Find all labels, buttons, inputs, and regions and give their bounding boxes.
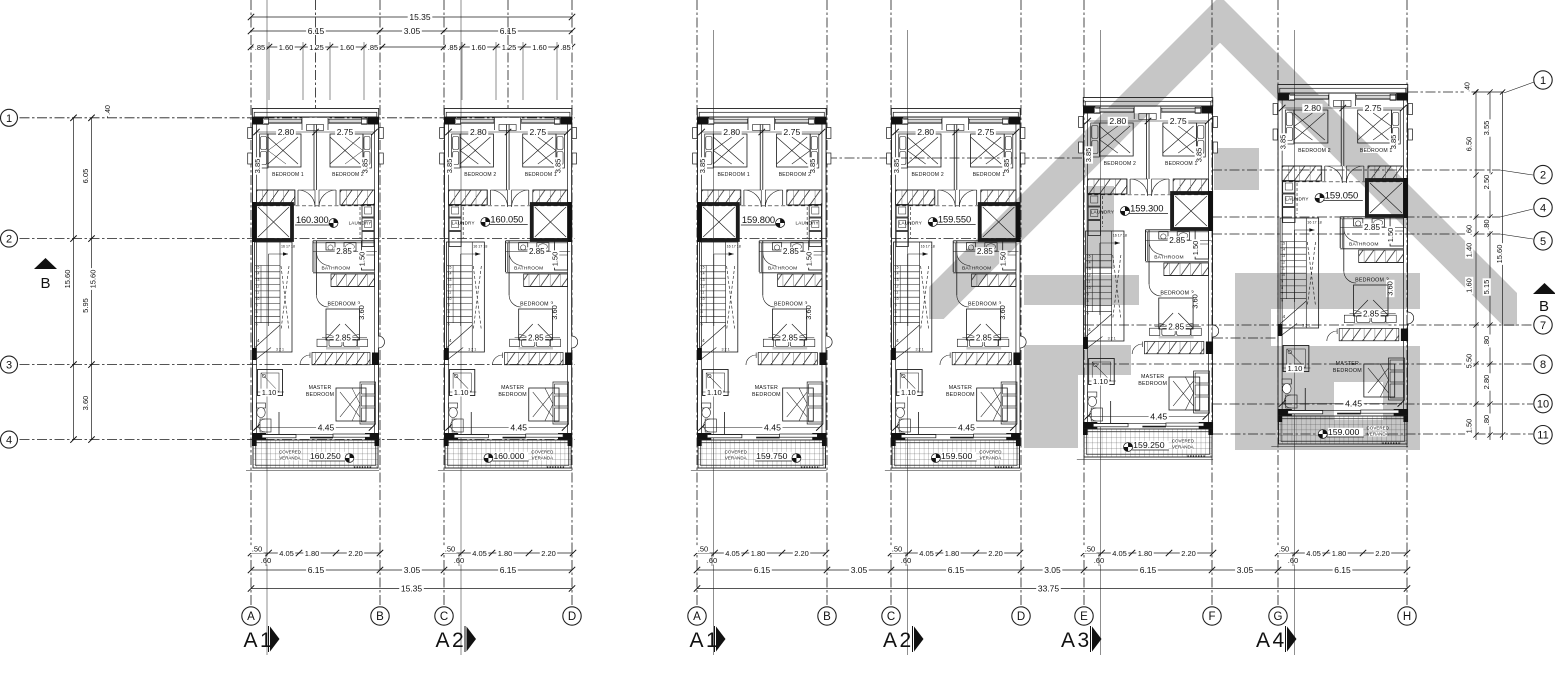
svg-text:B: B [1539,298,1549,315]
svg-text:G: G [1274,611,1283,623]
svg-text:.50: .50 [252,545,262,554]
svg-text:3.05: 3.05 [404,26,421,36]
svg-text:2: 2 [1540,170,1546,182]
svg-text:2.20: 2.20 [1181,549,1196,558]
svg-text:11: 11 [1537,430,1548,442]
svg-text:15.60: 15.60 [63,270,72,289]
svg-text:.40: .40 [105,105,112,115]
svg-text:1.60: 1.60 [1465,278,1474,293]
svg-text:1.60: 1.60 [279,43,294,52]
svg-text:VERANDA: VERANDA [1367,432,1389,437]
svg-text:160.250: 160.250 [310,451,341,461]
svg-text:.85: .85 [255,43,265,52]
svg-text:4.05: 4.05 [1306,549,1321,558]
svg-text:10: 10 [1537,399,1549,411]
svg-text:4.05: 4.05 [279,549,294,558]
svg-text:6.15: 6.15 [1334,565,1351,575]
svg-text:VERANDA: VERANDA [1172,445,1194,450]
svg-text:.50: .50 [892,545,902,554]
svg-text:H: H [1403,611,1411,623]
svg-text:15.35: 15.35 [409,12,431,22]
svg-text:5.15: 5.15 [1482,280,1491,295]
svg-text:VERANDA: VERANDA [279,456,300,461]
svg-text:2: 2 [6,234,12,246]
svg-text:3.55: 3.55 [1482,121,1491,136]
svg-text:159.750: 159.750 [756,451,788,461]
svg-text:COVERED: COVERED [725,450,747,455]
svg-text:3.05: 3.05 [1044,565,1061,575]
svg-text:A: A [693,611,701,623]
svg-text:3.60: 3.60 [81,396,90,411]
svg-text:2.20: 2.20 [794,549,809,558]
svg-text:3.05: 3.05 [1237,565,1254,575]
svg-text:5: 5 [1540,236,1546,248]
svg-text:4.05: 4.05 [1112,549,1127,558]
svg-text:.40: .40 [1465,82,1472,92]
svg-text:COVERED: COVERED [979,450,1001,455]
svg-text:6.50: 6.50 [1465,137,1474,152]
svg-text:2.20: 2.20 [348,549,363,558]
svg-text:.85: .85 [368,43,378,52]
svg-text:1.50: 1.50 [1465,419,1474,434]
svg-text:3.05: 3.05 [851,565,868,575]
svg-text:A 2: A 2 [436,629,464,652]
svg-text:4.05: 4.05 [919,549,934,558]
svg-text:.80: .80 [1482,415,1491,425]
svg-text:15.35: 15.35 [401,584,423,594]
svg-text:A 1: A 1 [244,629,272,652]
svg-text:1.80: 1.80 [945,549,960,558]
svg-text:15.60: 15.60 [89,270,98,289]
svg-text:3: 3 [6,360,12,372]
svg-text:VERANDA: VERANDA [980,456,1002,461]
svg-text:5.95: 5.95 [81,298,90,313]
svg-text:1.80: 1.80 [751,549,766,558]
svg-text:.60: .60 [1465,225,1474,235]
svg-text:1.80: 1.80 [1138,549,1153,558]
svg-text:3.05: 3.05 [404,565,421,575]
svg-text:7: 7 [1540,320,1546,332]
svg-text:6.15: 6.15 [948,565,965,575]
svg-text:COVERED: COVERED [531,450,553,455]
svg-text:159.550: 159.550 [938,215,971,225]
svg-text:4.05: 4.05 [725,549,740,558]
svg-text:A 1: A 1 [690,629,718,652]
svg-text:F: F [1208,611,1215,623]
svg-text:1.25: 1.25 [502,43,517,52]
svg-text:5.50: 5.50 [1465,354,1474,369]
svg-text:VERANDA: VERANDA [532,456,553,461]
svg-text:159.250: 159.250 [1133,440,1165,450]
svg-text:2.50: 2.50 [1482,175,1491,190]
svg-text:A 4: A 4 [1256,629,1284,652]
svg-text:VERANDA: VERANDA [725,456,747,461]
svg-text:1.60: 1.60 [532,43,547,52]
svg-text:1.40: 1.40 [1465,243,1474,258]
svg-text:4: 4 [1540,202,1546,214]
svg-text:2.20: 2.20 [988,549,1003,558]
svg-text:160.050: 160.050 [490,215,523,225]
svg-text:159.800: 159.800 [742,215,775,225]
svg-text:D: D [1017,611,1025,623]
svg-text:6.15: 6.15 [308,565,325,575]
svg-text:6.15: 6.15 [308,26,325,36]
svg-text:6.05: 6.05 [81,169,90,184]
svg-text:1.60: 1.60 [340,43,355,52]
svg-text:4.05: 4.05 [472,549,487,558]
svg-text:B: B [823,611,831,623]
svg-text:6.15: 6.15 [754,565,771,575]
svg-text:6.15: 6.15 [500,565,517,575]
svg-text:4: 4 [6,435,12,447]
svg-text:1: 1 [1540,75,1546,87]
svg-text:.50: .50 [698,545,708,554]
svg-text:1.80: 1.80 [1332,549,1347,558]
svg-text:2.80: 2.80 [1482,375,1491,390]
svg-text:E: E [1080,611,1088,623]
svg-text:159.050: 159.050 [1325,191,1358,201]
svg-text:159.300: 159.300 [1130,204,1163,214]
svg-text:2.20: 2.20 [1375,549,1390,558]
svg-text:.50: .50 [445,545,455,554]
svg-text:.85: .85 [447,43,457,52]
svg-text:1.80: 1.80 [498,549,513,558]
svg-text:C: C [440,611,448,623]
svg-text:1: 1 [6,113,12,125]
svg-text:.85: .85 [560,43,570,52]
svg-text:A 3: A 3 [1061,629,1089,652]
svg-text:.50: .50 [1085,545,1095,554]
svg-text:15.60: 15.60 [1495,245,1504,264]
svg-text:.80: .80 [1482,336,1491,346]
svg-text:160.300: 160.300 [296,215,329,225]
svg-text:.50: .50 [1279,545,1289,554]
svg-text:COVERED: COVERED [279,450,301,455]
svg-text:COVERED: COVERED [1367,426,1389,431]
svg-text:159.000: 159.000 [1328,427,1360,437]
svg-text:A: A [247,611,255,623]
svg-text:1.25: 1.25 [309,43,324,52]
svg-text:.80: .80 [1482,219,1491,229]
svg-text:D: D [568,611,576,623]
svg-text:A 2: A 2 [883,629,911,652]
svg-text:8: 8 [1540,359,1546,371]
svg-text:160.000: 160.000 [493,451,524,461]
svg-text:B: B [40,275,50,292]
svg-text:159.500: 159.500 [941,451,973,461]
svg-text:33.75: 33.75 [1038,584,1060,594]
svg-text:2.20: 2.20 [541,549,556,558]
svg-text:1.80: 1.80 [305,549,320,558]
svg-text:6.15: 6.15 [1140,565,1157,575]
svg-text:C: C [887,611,895,623]
svg-text:COVERED: COVERED [1172,439,1194,444]
svg-text:B: B [376,611,384,623]
svg-text:1.60: 1.60 [471,43,486,52]
